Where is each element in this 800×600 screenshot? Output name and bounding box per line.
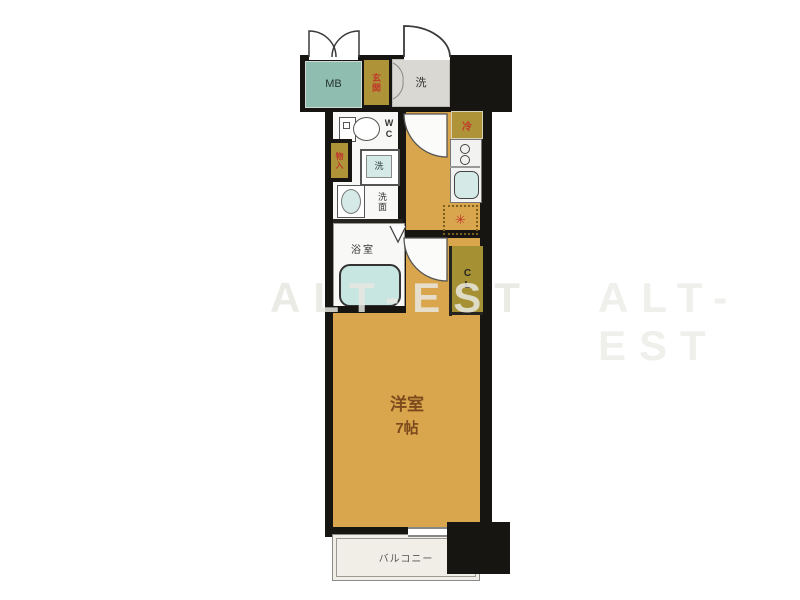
- bathroom-label: 浴室: [351, 245, 375, 256]
- bathtub: [339, 264, 401, 307]
- washbasin-bowl: [341, 189, 361, 214]
- stove-glyph: ✳: [455, 212, 466, 228]
- entrance-door-gap: [404, 55, 450, 60]
- watermark-2: ALT-EST: [598, 274, 800, 370]
- mb-door-gap: [309, 55, 358, 60]
- closet-wall-bottom: [449, 312, 483, 315]
- toilet-bowl: [353, 117, 380, 141]
- stove-space: ✳: [443, 205, 478, 235]
- entrance-door-arc: [404, 26, 450, 57]
- mb-door-left-arc: [309, 31, 336, 57]
- closet-label: CL: [462, 268, 473, 292]
- structure-block-bottom-right: [447, 522, 510, 574]
- main-room-size: 7帖: [333, 417, 481, 438]
- main-room-name: 洋室: [333, 390, 481, 415]
- burner-top: [460, 144, 470, 154]
- burner-bottom: [460, 155, 470, 165]
- entrance-label: 玄関: [370, 73, 383, 93]
- storage-cell: 物入: [331, 143, 348, 178]
- counter-divider: [450, 166, 480, 168]
- wall-bath-bottom: [325, 306, 406, 313]
- fridge-cell: 冷: [451, 111, 483, 139]
- storage-label: 物入: [334, 152, 345, 170]
- entry-hall: 洗: [392, 59, 450, 107]
- kitchen-sink: [454, 171, 479, 199]
- floor-plan: MB 玄関 洗 WC 物入 洗 洗面 浴室: [0, 0, 800, 600]
- washer-drum: 洗: [366, 155, 392, 178]
- meter-box: MB: [305, 61, 362, 108]
- entrance-strip: 玄関: [364, 60, 389, 105]
- washer-glyph: 洗: [374, 162, 383, 172]
- entry-hall-label: 洗: [416, 77, 427, 89]
- closet: CL: [452, 246, 483, 314]
- mb-door-right-arc: [332, 31, 359, 57]
- washroom-label: 洗面: [376, 192, 386, 212]
- balcony-label: バルコニー: [379, 550, 434, 565]
- toilet-flush-button: [343, 122, 350, 129]
- meter-box-label: MB: [325, 78, 342, 90]
- toilet-label: WC: [383, 118, 393, 140]
- fridge-label: 冷: [462, 118, 472, 133]
